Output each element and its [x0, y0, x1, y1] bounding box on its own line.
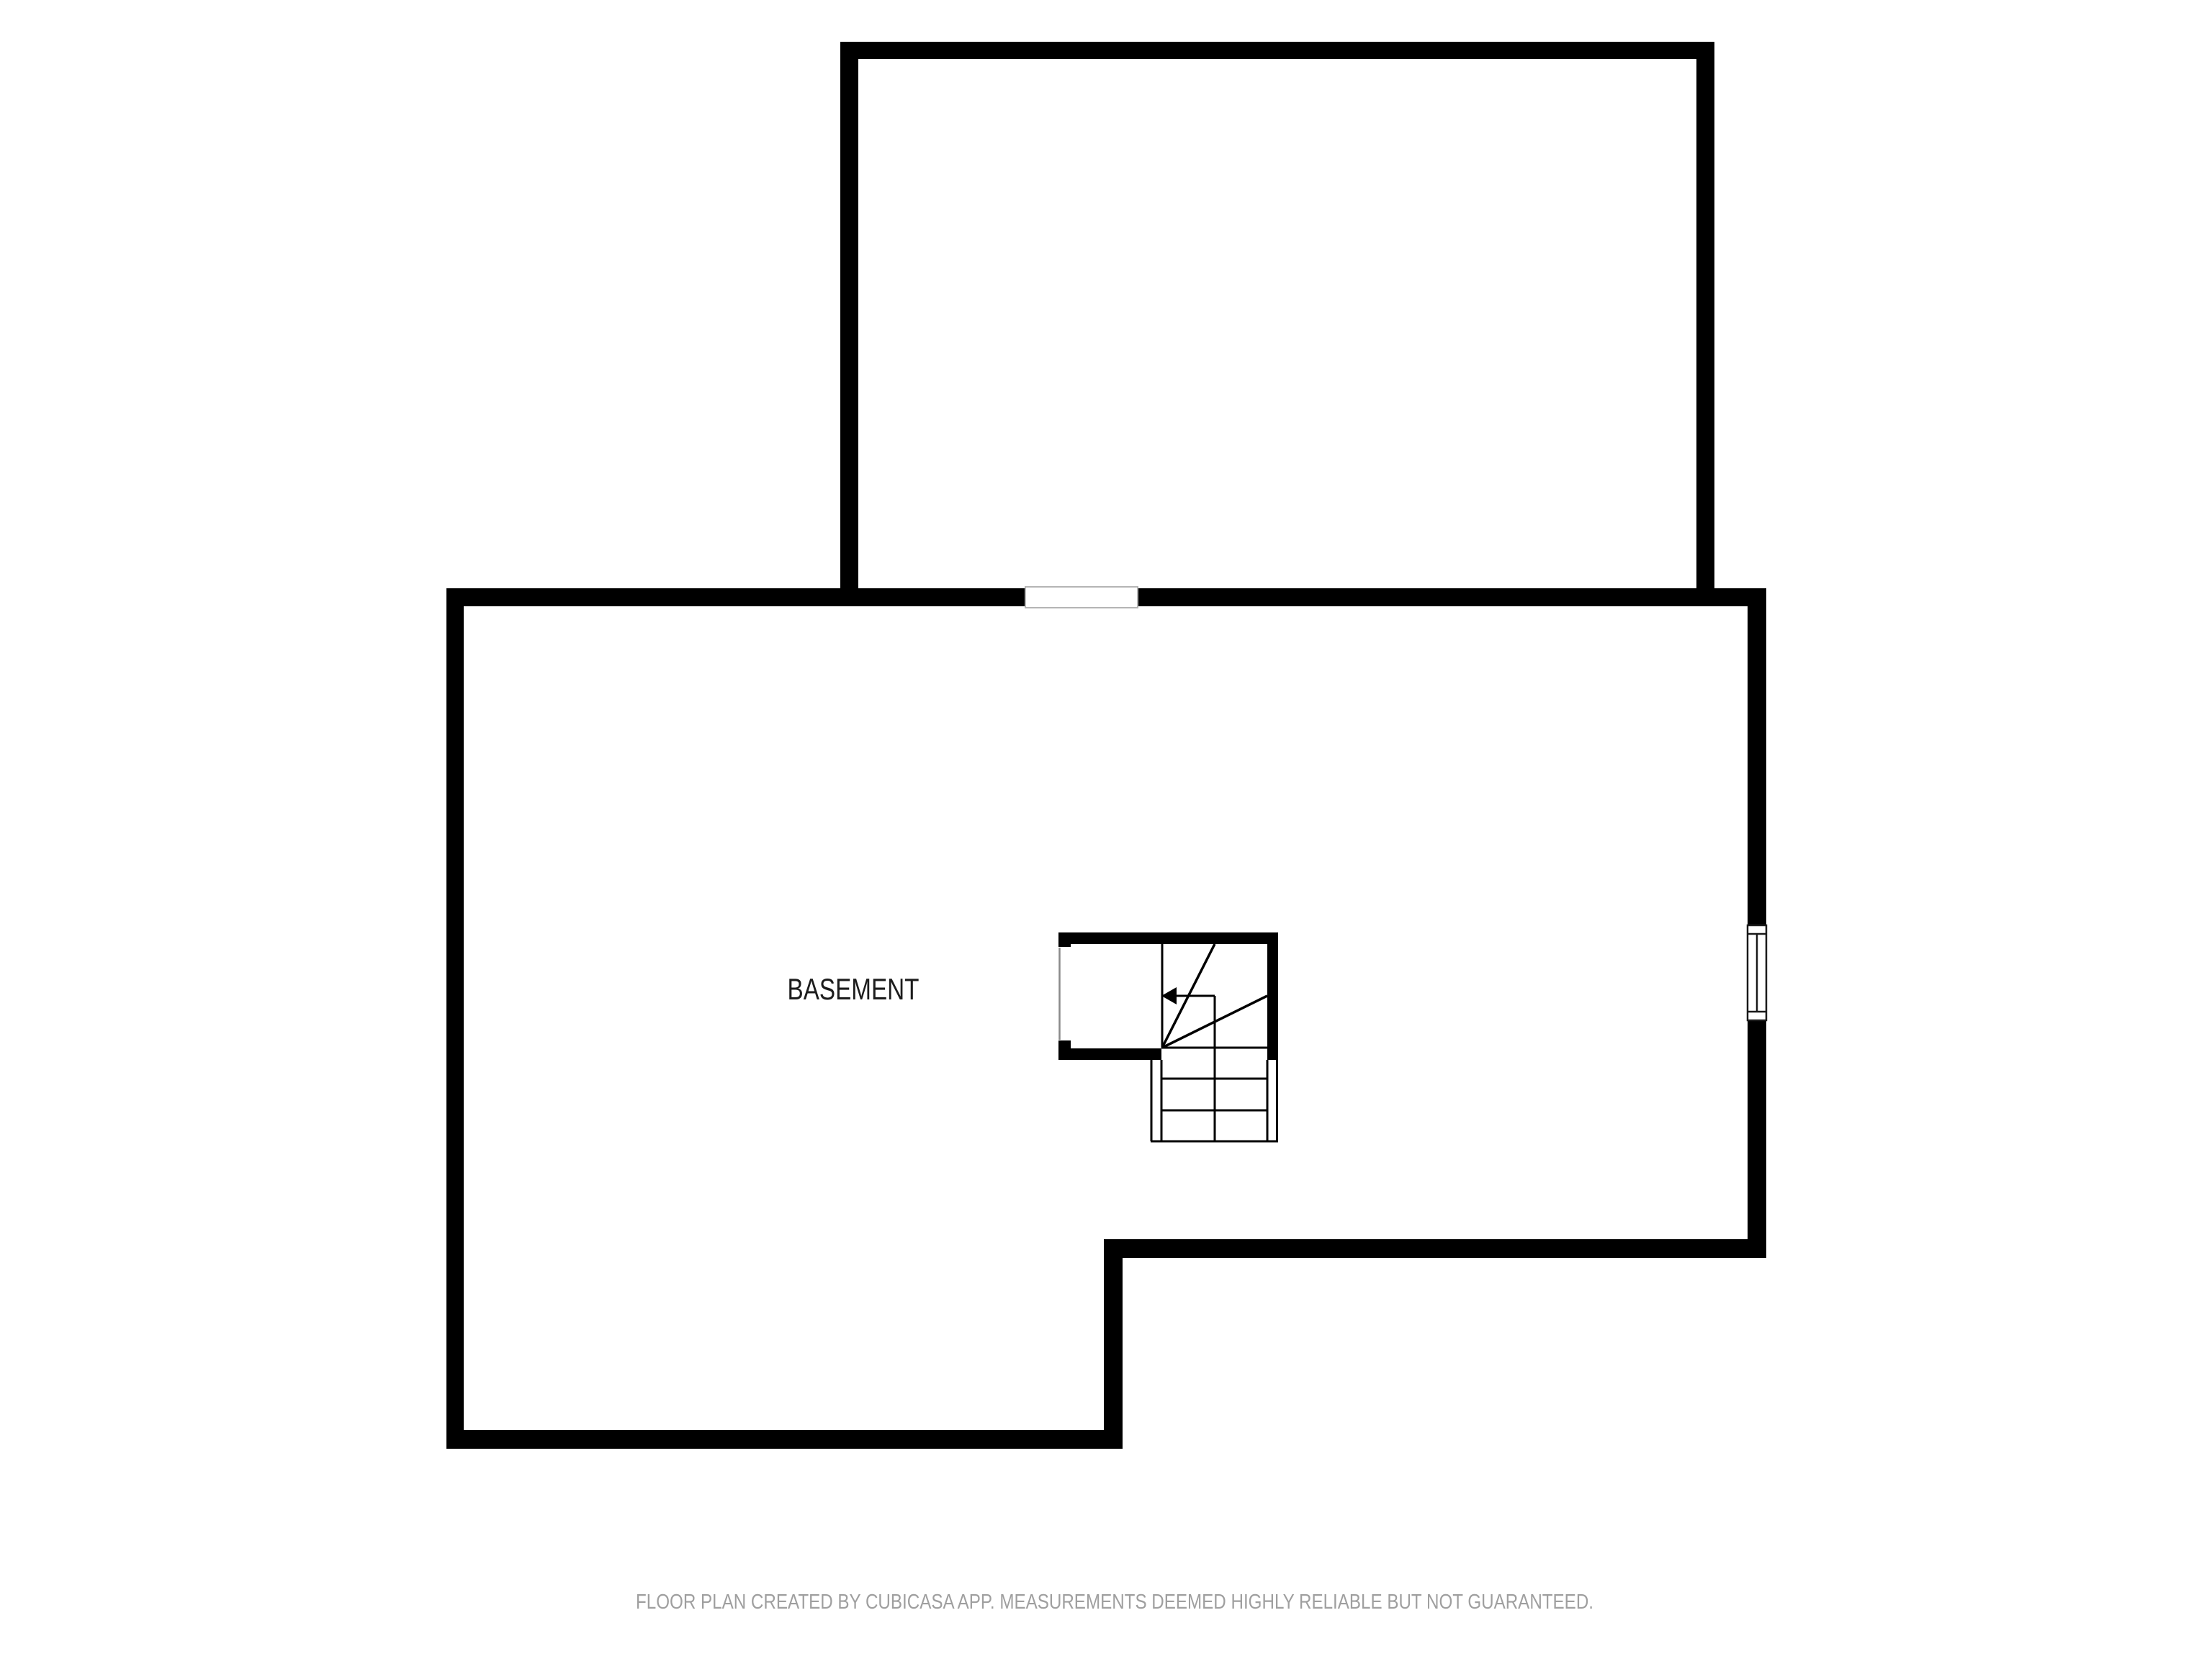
- stair-enclosure-top-wall: [1058, 932, 1278, 944]
- stair-enclosure-right-wall: [1267, 932, 1278, 1060]
- window: [1748, 925, 1766, 1020]
- basement-step-vertical-wall: [1104, 1239, 1123, 1449]
- room-label-basement: BASEMENT: [788, 972, 920, 1006]
- basement-step-horizontal-wall: [1104, 1239, 1766, 1258]
- door-opening: [1025, 587, 1138, 608]
- footer-disclaimer: FLOOR PLAN CREATED BY CUBICASA APP. MEAS…: [636, 1591, 1593, 1614]
- floor-plan-page: BASEMENT FLOOR PLAN CREATED BY CUBICASA …: [0, 0, 2212, 1659]
- basement-right-wall: [1748, 588, 1766, 1258]
- upper-room-top-wall: [840, 42, 1714, 59]
- upper-room-left-wall: [840, 42, 858, 606]
- basement-left-wall: [446, 588, 464, 1449]
- basement-bottom-wall: [446, 1430, 1123, 1449]
- upper-room-right-wall: [1696, 42, 1714, 606]
- stair-enclosure-left-jamb-top: [1058, 932, 1071, 947]
- floor-plan-canvas: BASEMENT FLOOR PLAN CREATED BY CUBICASA …: [0, 0, 2212, 1659]
- stair-enclosure-left-jamb-bottom: [1058, 1040, 1071, 1060]
- stair-enclosure-bottom-wall: [1058, 1048, 1161, 1060]
